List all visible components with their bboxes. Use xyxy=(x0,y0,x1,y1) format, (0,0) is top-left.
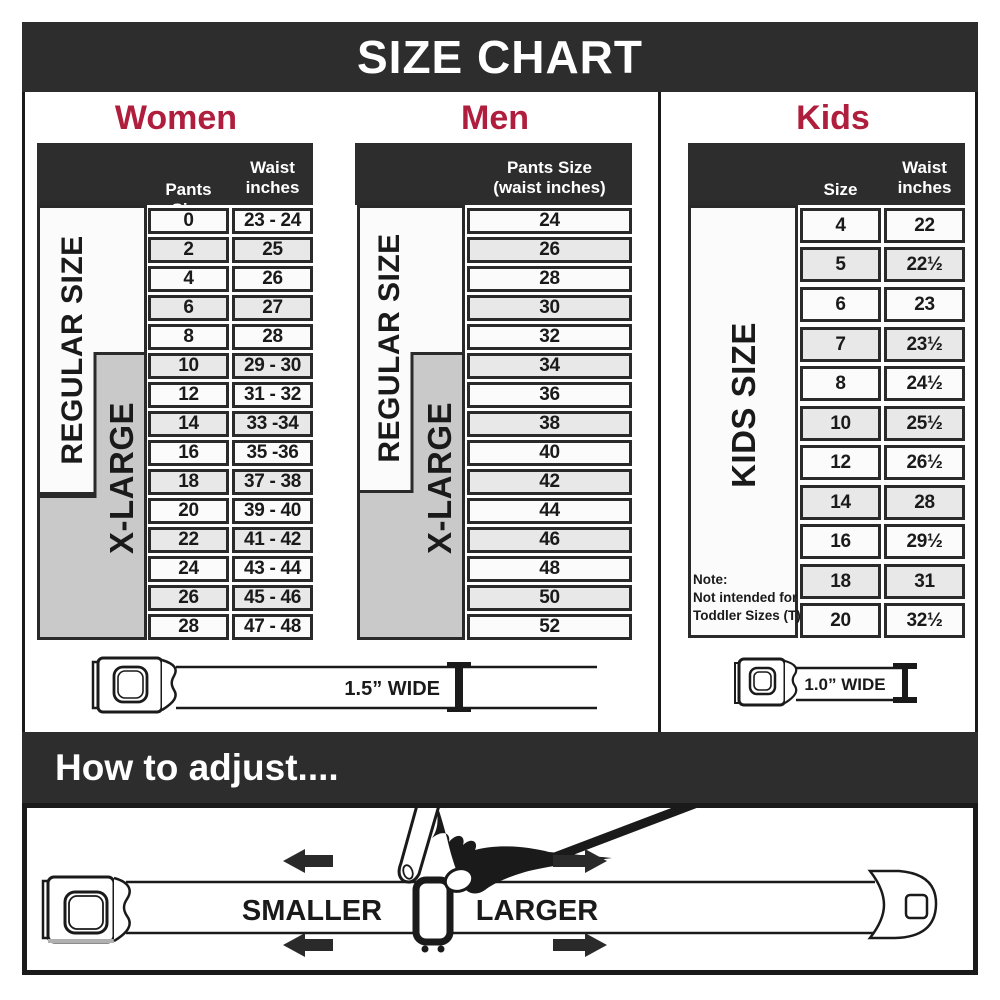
table-cell: 28 xyxy=(148,614,229,640)
table-cell: 4 xyxy=(148,266,229,292)
table-cell: 33 -34 xyxy=(232,411,313,437)
table-cell: 41 - 42 xyxy=(232,527,313,553)
kids-col1-header: Size xyxy=(800,180,881,200)
table-cell: 6 xyxy=(148,295,229,321)
table-cell: 32½ xyxy=(884,603,965,638)
table-cell: 22 xyxy=(884,208,965,243)
table-cell: 22½ xyxy=(884,247,965,282)
table-cell: 29 - 30 xyxy=(232,353,313,379)
table-cell: 43 - 44 xyxy=(232,556,313,582)
table-cell: 12 xyxy=(148,382,229,408)
seatbelt-buckle-icon xyxy=(735,659,796,705)
table-cell: 4 xyxy=(800,208,881,243)
table-cell: 10 xyxy=(148,353,229,379)
width-marker-icon xyxy=(447,662,471,712)
size-chart-page: SIZE CHART Women Men Kids Pants Size Wai… xyxy=(0,0,1000,1000)
table-cell: 20 xyxy=(800,603,881,638)
kids-belt-illustration: 1.0” WIDE xyxy=(730,652,930,714)
table-cell: 18 xyxy=(148,469,229,495)
table-cell: 48 xyxy=(467,556,632,582)
table-cell: 40 xyxy=(467,440,632,466)
page-title: SIZE CHART xyxy=(22,22,978,92)
kids-col2-header: Waist inches xyxy=(882,158,967,198)
table-cell: 2 xyxy=(148,237,229,263)
table-cell: 10 xyxy=(800,406,881,441)
women-title: Women xyxy=(76,99,276,138)
adjust-illustration-box: SMALLER LARGER xyxy=(22,803,978,975)
kids-divider xyxy=(658,92,661,732)
table-cell: 28 xyxy=(884,485,965,520)
table-cell: 37 - 38 xyxy=(232,469,313,495)
table-cell: 14 xyxy=(148,411,229,437)
table-cell: 20 xyxy=(148,498,229,524)
arrow-right-icon xyxy=(553,933,607,957)
table-cell: 12 xyxy=(800,445,881,480)
women-xlarge-label: X-LARGE xyxy=(103,402,141,554)
seatbelt-buckle-icon xyxy=(43,877,130,943)
men-col-header: Pants Size (waist inches) xyxy=(467,158,632,198)
table-cell: 44 xyxy=(467,498,632,524)
table-cell: 16 xyxy=(800,524,881,559)
belt-tip-icon xyxy=(870,871,936,938)
arrow-left-icon xyxy=(283,849,333,873)
larger-label: LARGER xyxy=(476,895,599,927)
table-cell: 26 xyxy=(148,585,229,611)
table-cell: 24 xyxy=(148,556,229,582)
women-col2-header: Waist inches xyxy=(230,158,315,198)
kids-title: Kids xyxy=(733,99,933,138)
table-cell: 22 xyxy=(148,527,229,553)
table-cell: 52 xyxy=(467,614,632,640)
kids-belt-width-label: 1.0” WIDE xyxy=(804,675,885,694)
belt-tail-line xyxy=(547,808,705,860)
table-cell: 36 xyxy=(467,382,632,408)
arrow-left-icon xyxy=(283,933,333,957)
table-cell: 26 xyxy=(232,266,313,292)
table-cell: 23½ xyxy=(884,327,965,362)
right-border xyxy=(975,92,978,732)
table-cell: 45 - 46 xyxy=(232,585,313,611)
how-to-adjust-band: How to adjust.... xyxy=(22,732,978,803)
smaller-label: SMALLER xyxy=(242,895,382,927)
table-cell: 50 xyxy=(467,585,632,611)
table-cell: 38 xyxy=(467,411,632,437)
table-cell: 7 xyxy=(800,327,881,362)
table-cell: 26 xyxy=(467,237,632,263)
table-cell: 26½ xyxy=(884,445,965,480)
table-cell: 5 xyxy=(800,247,881,282)
adult-belt-illustration: 1.5” WIDE xyxy=(85,652,615,718)
table-cell: 35 -36 xyxy=(232,440,313,466)
table-cell: 25½ xyxy=(884,406,965,441)
men-regular-size-label: REGULAR SIZE xyxy=(373,233,407,462)
table-cell: 30 xyxy=(467,295,632,321)
table-cell: 0 xyxy=(148,208,229,234)
title-banner: SIZE CHART xyxy=(22,22,978,92)
table-cell: 18 xyxy=(800,564,881,599)
women-regular-size-label: REGULAR SIZE xyxy=(56,235,90,464)
table-cell: 42 xyxy=(467,469,632,495)
kids-note: Note: Not intended for Toddler Sizes (T) xyxy=(693,571,801,626)
table-cell: 46 xyxy=(467,527,632,553)
seatbelt-buckle-icon xyxy=(93,658,176,712)
kids-size-label: KIDS SIZE xyxy=(725,322,763,488)
table-cell: 16 xyxy=(148,440,229,466)
table-cell: 27 xyxy=(232,295,313,321)
table-cell: 28 xyxy=(467,266,632,292)
table-cell: 23 xyxy=(884,287,965,322)
width-marker-icon xyxy=(893,663,917,703)
table-cell: 31 xyxy=(884,564,965,599)
table-cell: 24 xyxy=(467,208,632,234)
adjust-illustration: SMALLER LARGER xyxy=(27,808,973,970)
table-cell: 47 - 48 xyxy=(232,614,313,640)
left-border xyxy=(22,92,25,732)
table-cell: 39 - 40 xyxy=(232,498,313,524)
table-cell: 23 - 24 xyxy=(232,208,313,234)
how-to-adjust-title: How to adjust.... xyxy=(22,732,978,803)
table-cell: 6 xyxy=(800,287,881,322)
table-cell: 32 xyxy=(467,324,632,350)
table-cell: 14 xyxy=(800,485,881,520)
table-cell: 31 - 32 xyxy=(232,382,313,408)
table-cell: 24½ xyxy=(884,366,965,401)
table-cell: 34 xyxy=(467,353,632,379)
adult-belt-width-label: 1.5” WIDE xyxy=(344,678,440,700)
men-title: Men xyxy=(395,99,595,138)
men-xlarge-label: X-LARGE xyxy=(421,402,459,554)
table-cell: 25 xyxy=(232,237,313,263)
table-cell: 8 xyxy=(800,366,881,401)
belt-adjuster-icon xyxy=(416,880,450,953)
table-cell: 8 xyxy=(148,324,229,350)
table-cell: 28 xyxy=(232,324,313,350)
table-cell: 29½ xyxy=(884,524,965,559)
